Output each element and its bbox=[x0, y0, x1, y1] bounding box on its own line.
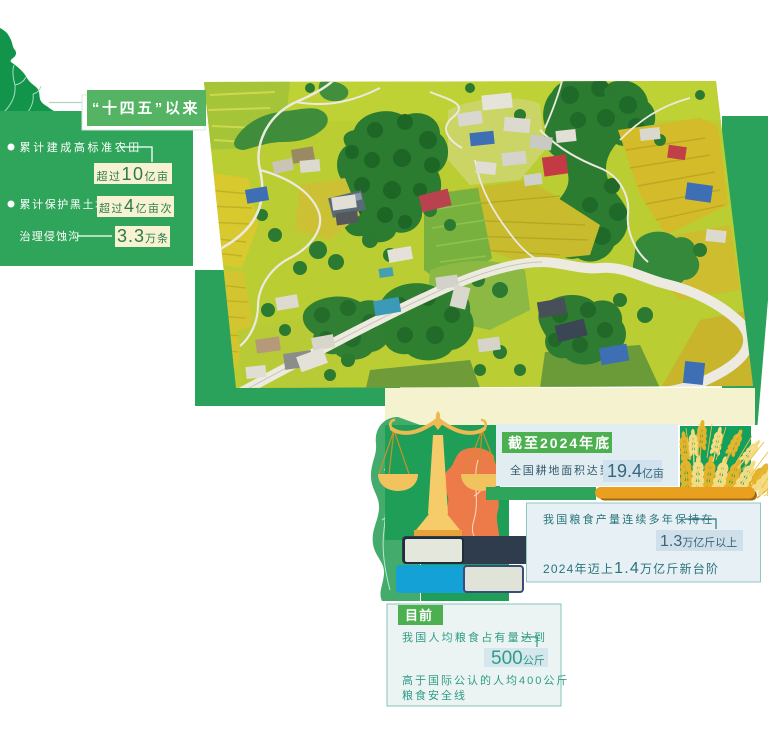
svg-text:累计保护黑土地: 累计保护黑土地 bbox=[20, 197, 108, 211]
svg-text:截至2024年底: 截至2024年底 bbox=[508, 435, 611, 451]
svg-text:“十四五”以来: “十四五”以来 bbox=[92, 99, 200, 117]
svg-text:粮食安全线: 粮食安全线 bbox=[402, 688, 467, 702]
svg-text:治理侵蚀沟: 治理侵蚀沟 bbox=[20, 229, 81, 243]
svg-text:全国耕地面积达到: 全国耕地面积达到 bbox=[510, 463, 612, 477]
svg-text:高于国际公认的人均400公斤: 高于国际公认的人均400公斤 bbox=[402, 673, 569, 687]
svg-text:目前: 目前 bbox=[405, 608, 433, 623]
svg-text:2024年迈上1.4万亿斤新台阶: 2024年迈上1.4万亿斤新台阶 bbox=[543, 560, 719, 577]
